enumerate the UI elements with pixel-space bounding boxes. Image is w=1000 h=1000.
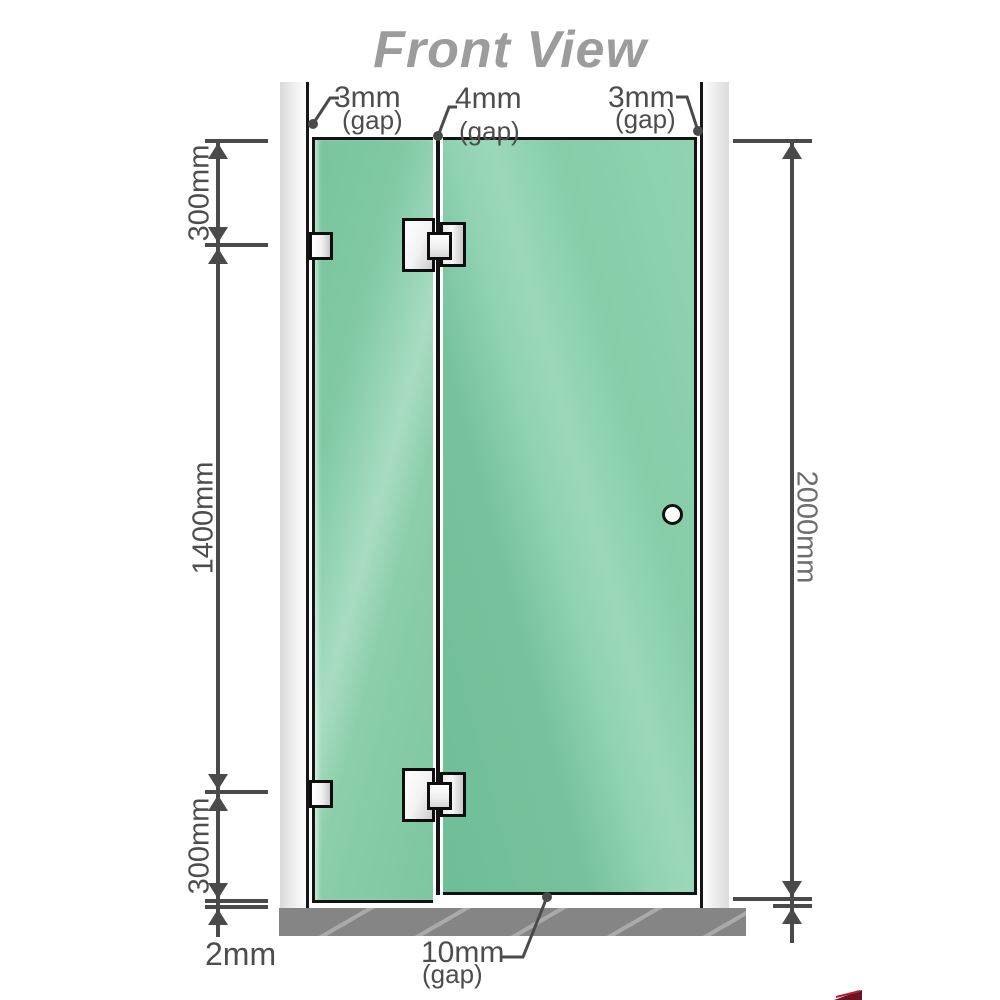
gap-label-middle-unit: (gap): [459, 118, 520, 144]
dimension-label-top-300: 300mm: [186, 145, 215, 242]
gap-label-right-unit: (gap): [615, 106, 676, 132]
dimension-label-bottom-300: 300mm: [186, 798, 215, 895]
dimension-label-middle-1400: 1400mm: [190, 462, 219, 575]
gap-label-middle-value: 4mm: [455, 84, 522, 114]
bottom-gap-label-unit: (gap): [422, 961, 483, 987]
wall-bracket-bottom: [309, 780, 333, 808]
door-glass-panel: [443, 137, 697, 895]
door-knob: [662, 504, 683, 525]
brand-mark: [834, 990, 862, 1000]
front-view-diagram: Front View: [0, 0, 1000, 1000]
dimension-label-total-2000: 2000mm: [792, 471, 821, 584]
hinge-bottom-knuckle: [427, 782, 452, 810]
diagram-title: Front View: [290, 24, 730, 80]
floor-base: [279, 908, 746, 936]
left-wall-channel: [280, 82, 309, 908]
right-wall-channel: [700, 82, 729, 908]
wall-bracket-top: [309, 232, 333, 260]
gap-label-left-unit: (gap): [342, 107, 403, 133]
floor-clearance-label: 2mm: [205, 938, 276, 970]
hinge-top-knuckle: [427, 232, 452, 260]
